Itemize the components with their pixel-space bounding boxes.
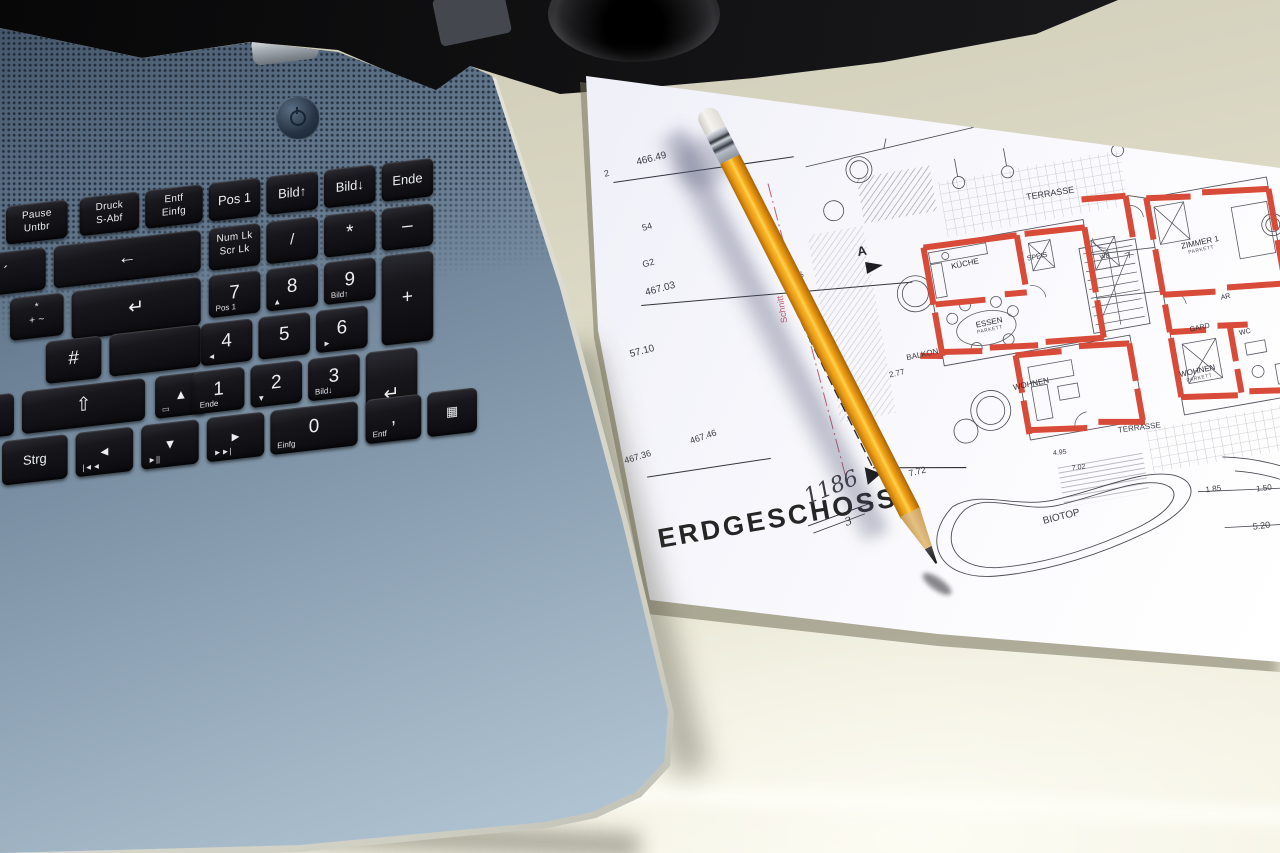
power-button xyxy=(276,96,320,140)
key-np4-label: 4 xyxy=(201,327,253,355)
key-ae: Ä xyxy=(0,393,14,442)
key-shift: ⇧ xyxy=(22,378,145,434)
key-np3-label: 3 xyxy=(308,363,360,391)
key-strg: Strg xyxy=(2,434,68,486)
key-np0: 0Einfg xyxy=(270,401,357,455)
key-np7: 7Pos 1 xyxy=(209,270,261,318)
key-np-comma-label: , xyxy=(366,404,422,432)
key-np-comma-sublabel: Entf xyxy=(373,429,387,440)
key-arrow-right-label: ► xyxy=(207,426,265,448)
key-enter-bottom xyxy=(109,324,200,377)
key-backspace-label: ← xyxy=(54,239,201,278)
key-np-divide-label: / xyxy=(266,228,318,251)
key-ae-label: Ä xyxy=(0,402,14,430)
key-np3-sublabel: Bild↓ xyxy=(315,386,332,397)
key-np2: 2▼ xyxy=(250,360,302,408)
key-np-plus: + xyxy=(382,250,434,345)
key-arrow-down: ▼►|| xyxy=(141,419,199,470)
key-np4-sublabel: ◄ xyxy=(208,352,216,362)
key-plus-star-tilde: *+ ~ xyxy=(10,292,64,340)
key-np5: 5 xyxy=(258,312,310,360)
key-enter-top-label: ↵ xyxy=(72,289,201,327)
key-np6-label: 6 xyxy=(316,314,368,342)
key-enter-bottom-label xyxy=(109,345,200,355)
key-hash-label: # xyxy=(46,345,102,373)
key-np6-sublabel: ► xyxy=(323,339,331,349)
key-arrow-right: ►►►| xyxy=(207,412,265,463)
key-np-minus: – xyxy=(382,203,434,251)
key-arrow-down-label: ▼ xyxy=(141,433,199,455)
key-bild-down: Bild↓ xyxy=(324,164,376,208)
key-calc: ▦ xyxy=(427,387,477,437)
key-entf-einfg: EntfEinfg xyxy=(145,184,203,229)
key-np0-label: 0 xyxy=(270,411,357,443)
key-arrow-left-sublabel: |◄◄ xyxy=(83,461,101,472)
key-np-divide: / xyxy=(266,216,318,264)
key-np-minus-label: – xyxy=(382,212,434,240)
key-np5-label: 5 xyxy=(258,321,310,349)
key-bild-down-label: Bild↓ xyxy=(324,175,376,196)
key-np2-label: 2 xyxy=(250,369,302,397)
key-pos1: Pos 1 xyxy=(209,177,261,221)
key-np8-label: 8 xyxy=(266,273,318,301)
power-icon xyxy=(290,110,306,126)
key-arrow-up-sublabel: ▭ xyxy=(162,404,170,414)
key-np9: 9Bild↑ xyxy=(324,257,376,305)
key-shift-label: ⇧ xyxy=(22,386,145,423)
key-accent-label: ´ xyxy=(0,259,46,285)
key-np-comma: ,Entf xyxy=(366,394,422,445)
key-np-plus-label: + xyxy=(382,283,434,311)
key-np0-sublabel: Einfg xyxy=(277,439,295,450)
key-bild-up: Bild↑ xyxy=(266,171,318,215)
key-np1-sublabel: Ende xyxy=(200,399,219,410)
photo-canvas: 2466.4954G2Schnitt-376-467.0357.10467.36… xyxy=(0,0,1280,853)
key-arrow-left-label: ◄ xyxy=(76,440,134,462)
key-np-multiply-label: * xyxy=(324,219,376,247)
plan-label-marker-a: A xyxy=(856,244,868,258)
key-numlock: Num LkScr Lk xyxy=(209,223,261,271)
key-np2-sublabel: ▼ xyxy=(257,393,265,403)
key-arrow-down-sublabel: ►|| xyxy=(148,455,160,465)
key-calc-label: ▦ xyxy=(427,401,477,423)
key-np1: 1Ende xyxy=(193,367,245,415)
key-np8-sublabel: ▲ xyxy=(273,297,281,307)
key-arrow-right-sublabel: ►►| xyxy=(214,446,232,457)
key-np7-sublabel: Pos 1 xyxy=(216,302,236,313)
key-bild-up-label: Bild↑ xyxy=(266,182,318,203)
key-np4: 4◄ xyxy=(201,318,253,366)
keyboard: PauseUntbrDruckS-AbfEntfEinfgPos 1Bild↑B… xyxy=(10,145,527,506)
key-ende: Ende xyxy=(382,158,434,202)
key-np6: 6► xyxy=(316,305,368,353)
key-druck: DruckS-Abf xyxy=(80,191,140,236)
key-np8: 8▲ xyxy=(266,264,318,312)
key-arrow-left: ◄|◄◄ xyxy=(76,426,134,477)
key-np9-label: 9 xyxy=(324,266,376,294)
key-np3: 3Bild↓ xyxy=(308,353,360,401)
key-pause: PauseUntbr xyxy=(6,199,68,244)
key-np-multiply: * xyxy=(324,210,376,258)
key-accent: ´ xyxy=(0,247,46,298)
key-hash: # xyxy=(46,335,102,384)
key-pos1-label: Pos 1 xyxy=(209,188,261,209)
key-np9-sublabel: Bild↑ xyxy=(331,289,348,300)
key-strg-label: Strg xyxy=(2,448,68,471)
key-ende-label: Ende xyxy=(382,169,434,190)
